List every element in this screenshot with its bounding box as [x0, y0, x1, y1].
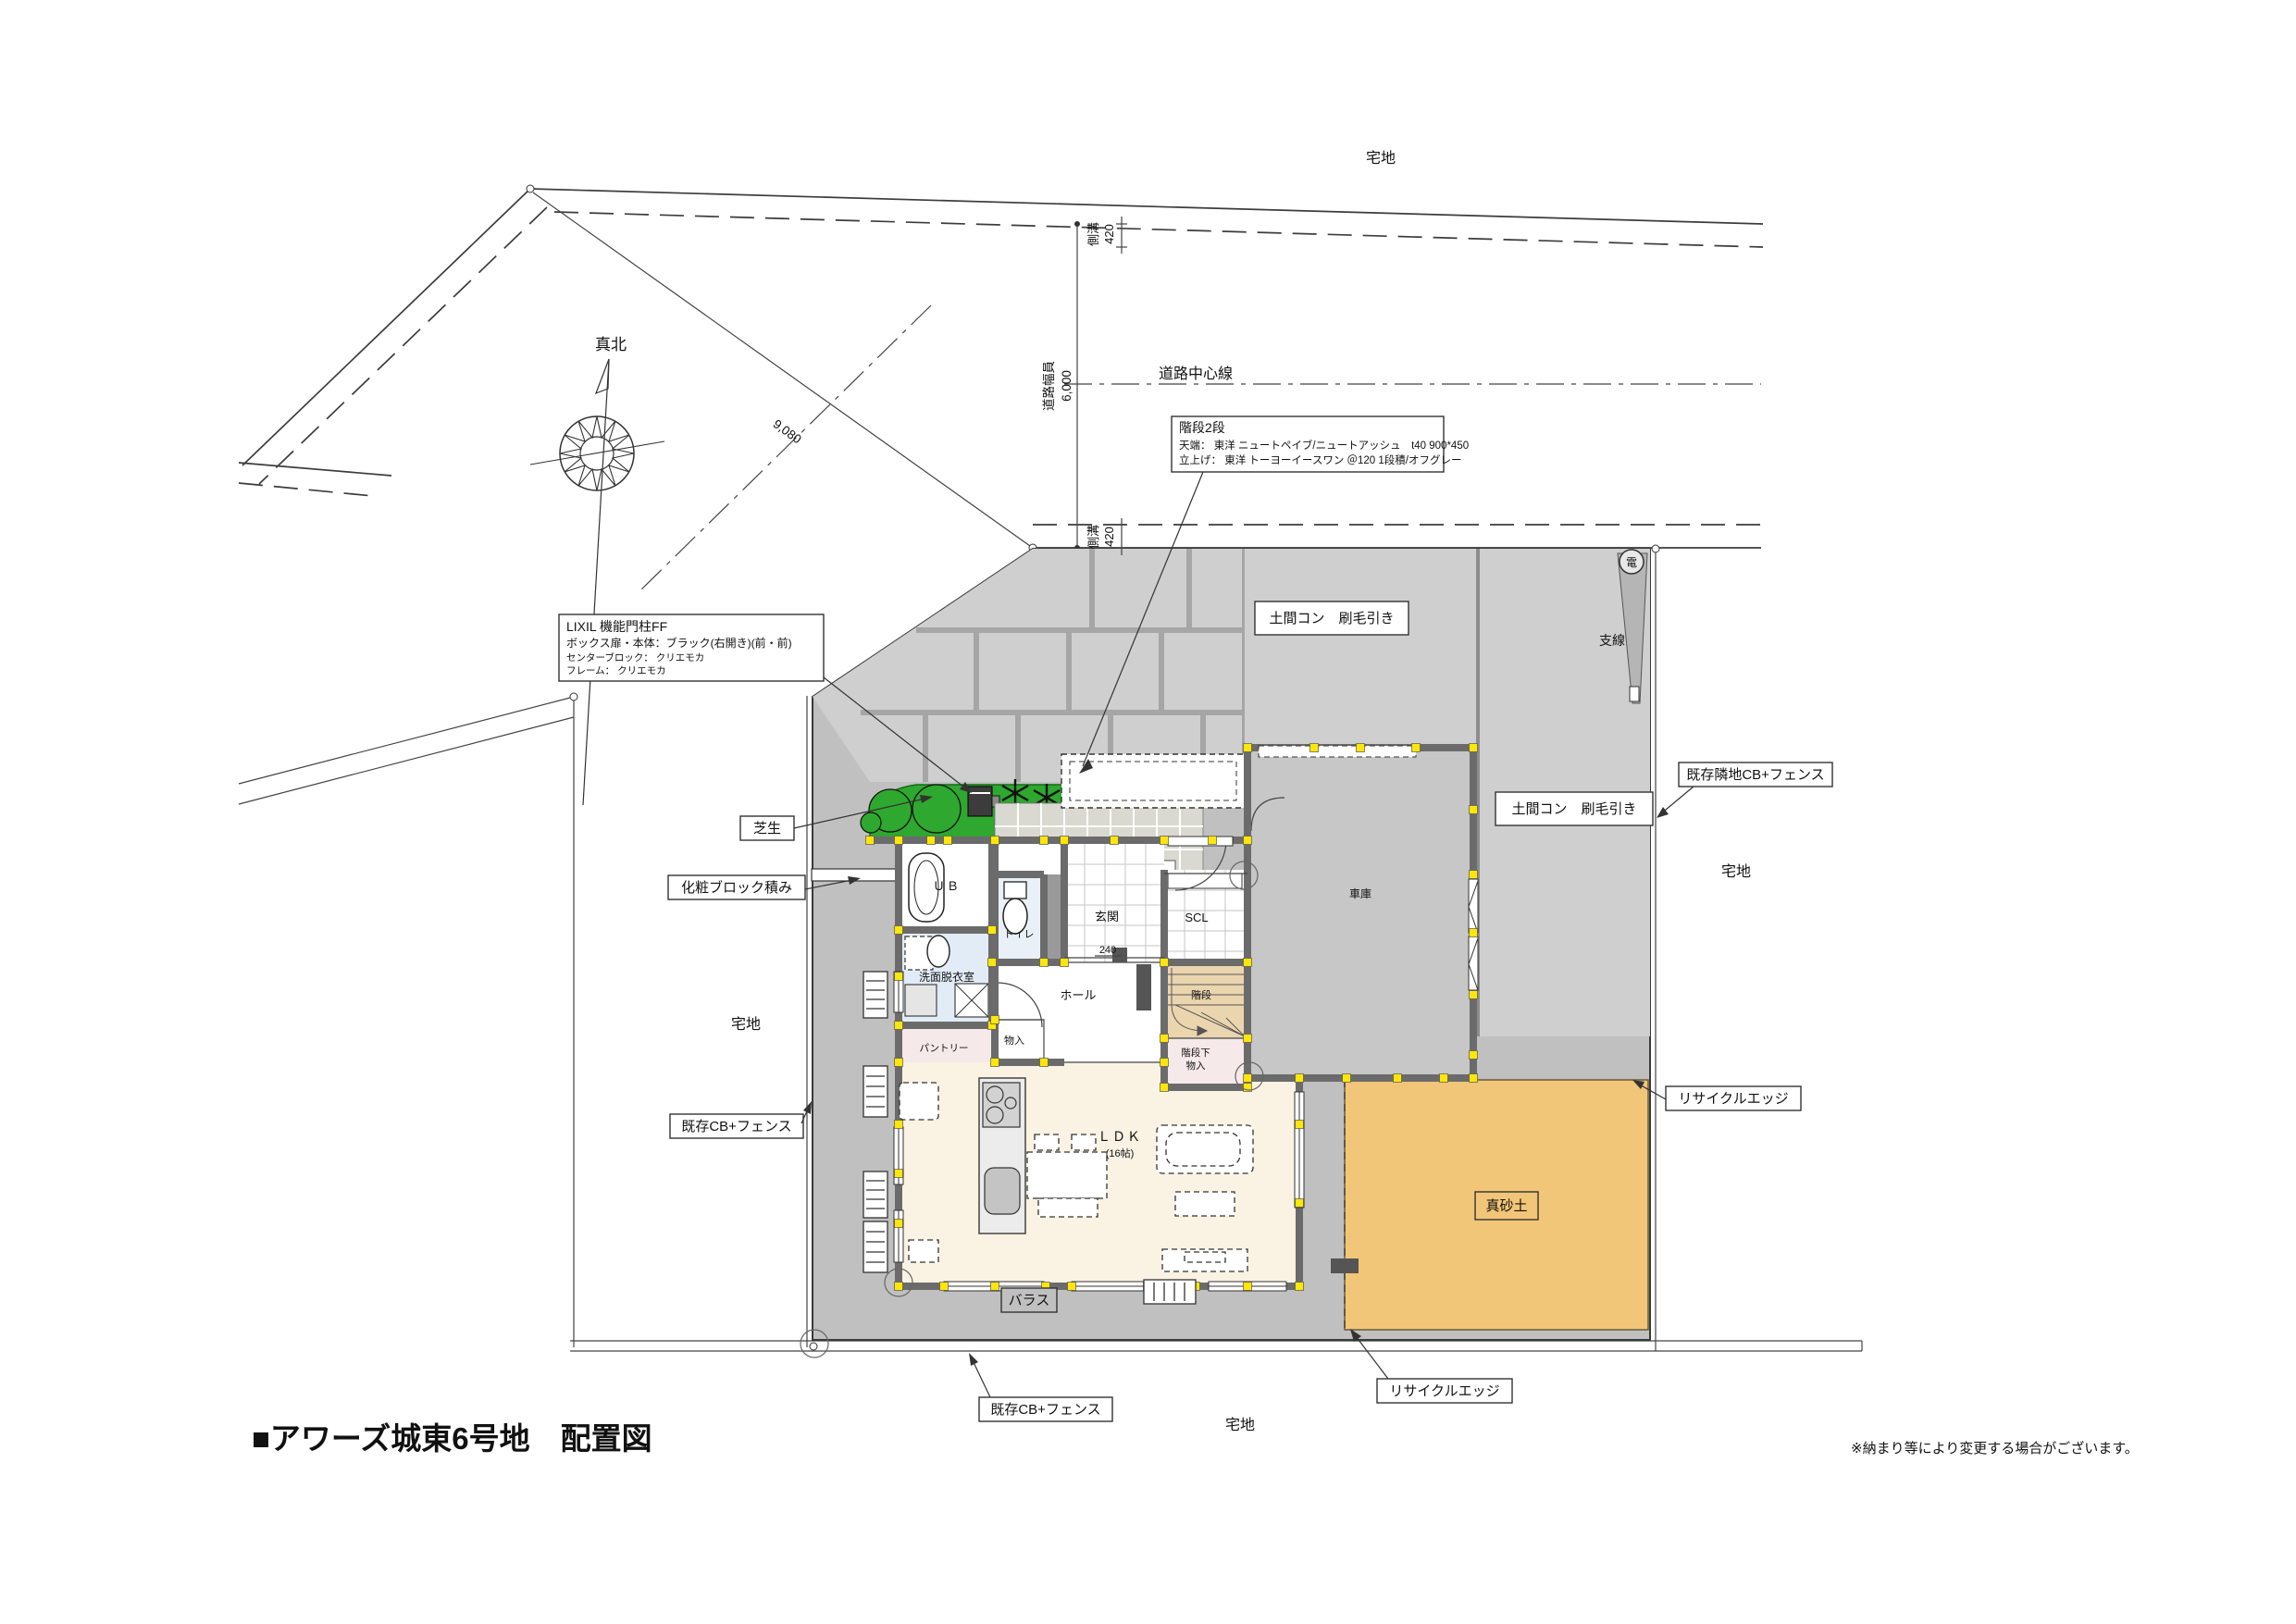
toilet-fixture: [1003, 882, 1027, 934]
shrub-circle: [912, 785, 961, 833]
takuchi-label-left: 宅地: [731, 1016, 761, 1033]
existing-fence-note-bottom: 既存CB+フェンス: [969, 1353, 1112, 1421]
room-label-garage: 車庫: [1349, 887, 1371, 900]
room-label-toilet: トイレ: [1004, 929, 1035, 940]
takuchi-label-top: 宅地: [1366, 150, 1396, 167]
gutter-value-top: 420: [1102, 224, 1116, 244]
room-label-washroom: 洗面脱衣室: [919, 970, 974, 984]
room-label-genkan: 玄関: [1095, 910, 1119, 924]
room-label-understair-2: 物入: [1186, 1060, 1207, 1072]
gatepost-line4: フレーム： クリエモカ: [566, 665, 666, 676]
shrub-circle: [861, 812, 881, 833]
stair-spec-line2: 天端： 東洋 ニュートペイブ/ニュートアッシュ t40 900*450: [1179, 439, 1469, 452]
room-label-hall: ホール: [1060, 988, 1096, 1002]
recycle-edge-label-bottom: リサイクルエッジ: [1389, 1383, 1499, 1399]
road-centerline-label: 道路中心線: [1159, 366, 1233, 382]
north-compass: 真北: [530, 336, 664, 805]
coffee-table: [1175, 1192, 1235, 1216]
road-width-label: 道路幅員: [1042, 361, 1056, 411]
stair-spec-line1: 階段2段: [1179, 420, 1225, 435]
room-label-understair-1: 階段下: [1181, 1047, 1210, 1059]
gatepost-line2: ボックス扉・本体：ブラック(右開き)(前・前): [566, 636, 792, 650]
gutter-value-bottom: 420: [1102, 527, 1116, 547]
room-label-stairs: 階段: [1191, 988, 1211, 1001]
kitchen-sink: [985, 1168, 1020, 1214]
road-centerline-diagonal: [639, 305, 931, 592]
gutter-label-bottom: 側溝: [1086, 525, 1100, 549]
washer-pan: [955, 984, 988, 1017]
recycle-edge-label-right: リサイクルエッジ: [1678, 1091, 1788, 1107]
drawing-title: ■アワーズ城東6号地 配置図: [252, 1421, 652, 1456]
dim-240: 240: [1099, 945, 1116, 956]
dining-bench: [1038, 1198, 1098, 1217]
ac-outdoor-unit: [1144, 1280, 1196, 1304]
garage-shutter: [1259, 746, 1416, 757]
garage-room: [1249, 751, 1470, 1078]
frontage-dimension-line: [533, 192, 1030, 546]
doma-concrete-note-right: 土間コン 刷毛引き: [1496, 792, 1653, 825]
gatepost-line1: LIXIL 機能門柱FF: [566, 619, 667, 634]
takuchi-label-right: 宅地: [1721, 863, 1751, 880]
site-plan-drawing: 電 支線: [0, 0, 2296, 1624]
site-plan-canvas: 電 支線: [0, 0, 2296, 1624]
gatepost-line3: センターブロック： クリエモカ: [566, 651, 704, 663]
takuchi-label-bottom: 宅地: [1225, 1417, 1255, 1433]
dining-chair: [1072, 1134, 1096, 1150]
power-pole-label: 電: [1626, 556, 1637, 569]
barasu-label: バラス: [1009, 1293, 1050, 1308]
vanity-cabinet: [905, 985, 937, 1016]
lawn-label: 芝生: [753, 821, 781, 837]
window-bay: [900, 1083, 938, 1120]
stair-spec-line3: 立上げ： 東洋 トーヨーイースワン ＠120 1段積/オフグレー: [1179, 453, 1461, 466]
recycle-edge-note-right: リサイクルエッジ: [1632, 1080, 1801, 1110]
room-label-pantry: パントリー: [919, 1043, 968, 1054]
neighbor-fence-label: 既存隣地CB+フェンス: [1686, 767, 1824, 783]
room-label-ldk-size: (16帖): [1106, 1147, 1135, 1159]
existing-fence-label-left: 既存CB+フェンス: [681, 1119, 791, 1134]
existing-fence-label-bottom: 既存CB+フェンス: [990, 1402, 1100, 1418]
laundry-basin: [927, 936, 949, 967]
doma-concrete-label-right: 土間コン 刷毛引き: [1511, 801, 1636, 817]
room-label-closet: 物入: [1004, 1034, 1024, 1047]
sofa-seat: [1166, 1133, 1240, 1166]
dimensions: 側溝 420 側溝 420 道路幅員 6,000 9,080 道路中心線: [771, 217, 1233, 555]
function-gate-post: [968, 787, 992, 816]
dining-table: [1027, 1152, 1107, 1198]
gutter-label-top: 側溝: [1086, 222, 1100, 246]
decorative-block-label: 化粧ブロック積み: [681, 879, 792, 896]
masado-note: 真砂土: [1475, 1192, 1538, 1220]
guy-wire-label: 支線: [1599, 633, 1625, 648]
doma-concrete-note-top: 土間コン 刷毛引き: [1255, 601, 1409, 635]
barasu-note: バラス: [1001, 1288, 1057, 1312]
room-label-ldk: ＬＤＫ: [1098, 1129, 1142, 1144]
frontage-dimension: 9,080: [771, 416, 804, 446]
storage-nook: [995, 844, 1064, 874]
doma-concrete-label-top: 土間コン 刷毛引き: [1269, 611, 1394, 626]
room-label-ub: ＵＢ: [933, 879, 961, 893]
true-north-label: 真北: [595, 336, 627, 353]
neighbor-fence-note: 既存隣地CB+フェンス: [1657, 762, 1832, 818]
tv: [1185, 1252, 1225, 1262]
masado-label: 真砂土: [1485, 1197, 1527, 1214]
kitchen-island: [979, 1078, 1025, 1233]
revision-note: ※納まり等により変更する場合がございます。: [1851, 1440, 2139, 1457]
existing-fence-note-left: 既存CB+フェンス: [670, 1101, 812, 1138]
stairs-room: [1164, 964, 1245, 1038]
dining-chair: [1035, 1134, 1059, 1150]
cabinet: [909, 1240, 938, 1262]
room-label-scl: SCL: [1185, 911, 1208, 924]
road-width-value: 6,000: [1060, 370, 1074, 402]
